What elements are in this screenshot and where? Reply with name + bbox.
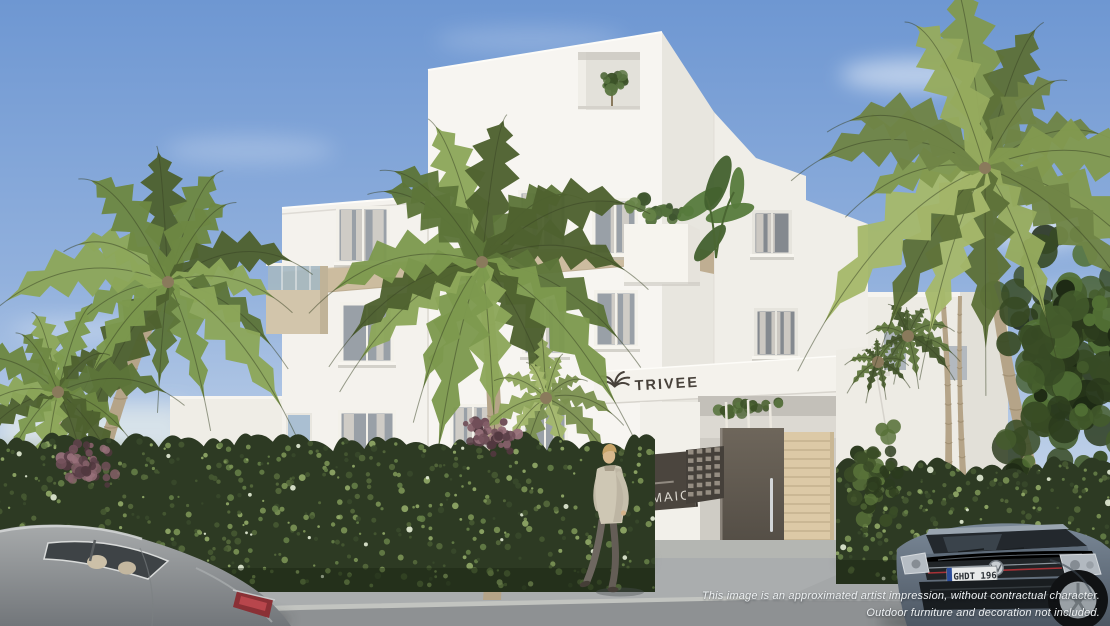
mailboxes-panel bbox=[686, 446, 724, 504]
rooftop-opening bbox=[578, 52, 640, 110]
disclaimer-text: This image is an approximated artist imp… bbox=[702, 588, 1100, 621]
disclaimer-line-2: Outdoor furniture and decoration not inc… bbox=[702, 605, 1100, 622]
cloud bbox=[165, 136, 335, 164]
door-handle bbox=[770, 478, 773, 532]
disclaimer-line-1: This image is an approximated artist imp… bbox=[702, 588, 1100, 605]
render-canvas: TRIVEE MAIO bbox=[0, 0, 1110, 626]
entrance-door bbox=[720, 428, 784, 552]
artist-impression-scene: TRIVEE MAIO bbox=[0, 0, 1110, 626]
